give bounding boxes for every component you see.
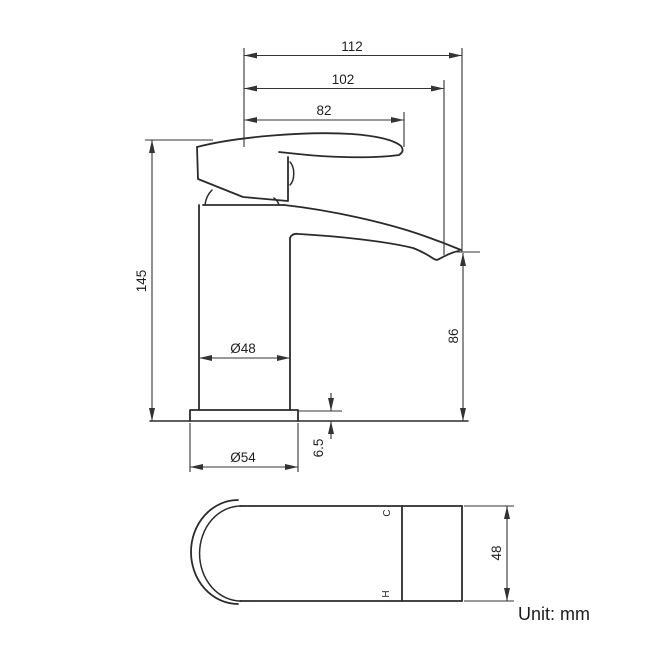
handle-button-detail bbox=[290, 162, 294, 185]
spout-underside-curve bbox=[290, 234, 459, 260]
handle-reach-dim-label: 82 bbox=[316, 103, 331, 118]
base-height-dim-label: 6.5 bbox=[311, 439, 326, 458]
base-diameter-dim-label: Ø54 bbox=[230, 450, 256, 465]
cartridge-dome-left-arc bbox=[205, 190, 212, 205]
unit-label: Unit: mm bbox=[518, 604, 590, 624]
side-view-outline bbox=[150, 133, 468, 421]
hot-indicator-label: H bbox=[381, 590, 392, 597]
total-height-dim-label: 145 bbox=[134, 270, 149, 293]
body-diameter-dim-label: Ø48 bbox=[230, 341, 256, 356]
technical-drawing-page: 112 102 82 145 86 Ø48 Ø54 6.5 48 C H Uni… bbox=[0, 0, 650, 650]
plan-cap-outer-arc bbox=[191, 500, 238, 604]
plan-cap-inner-arc bbox=[200, 506, 241, 601]
handle-blade-outline bbox=[197, 133, 403, 157]
handle-grip-outline bbox=[197, 147, 288, 201]
plan-view-dimensions: 48 C H bbox=[381, 506, 514, 601]
cartridge-dome-right-arc bbox=[274, 198, 279, 205]
spout-height-dim-label: 86 bbox=[446, 328, 461, 343]
spout-top-curve bbox=[284, 205, 461, 250]
total-reach-dim-label: 112 bbox=[341, 39, 363, 54]
spout-reach-dim-label: 102 bbox=[332, 72, 355, 87]
faucet-dimension-drawing: 112 102 82 145 86 Ø48 Ø54 6.5 48 C H Uni… bbox=[0, 0, 650, 650]
plan-view-outline bbox=[191, 500, 462, 604]
body-width-dim-label: 48 bbox=[489, 545, 504, 560]
cold-indicator-label: C bbox=[382, 509, 393, 516]
base-plate-outline bbox=[190, 410, 298, 421]
